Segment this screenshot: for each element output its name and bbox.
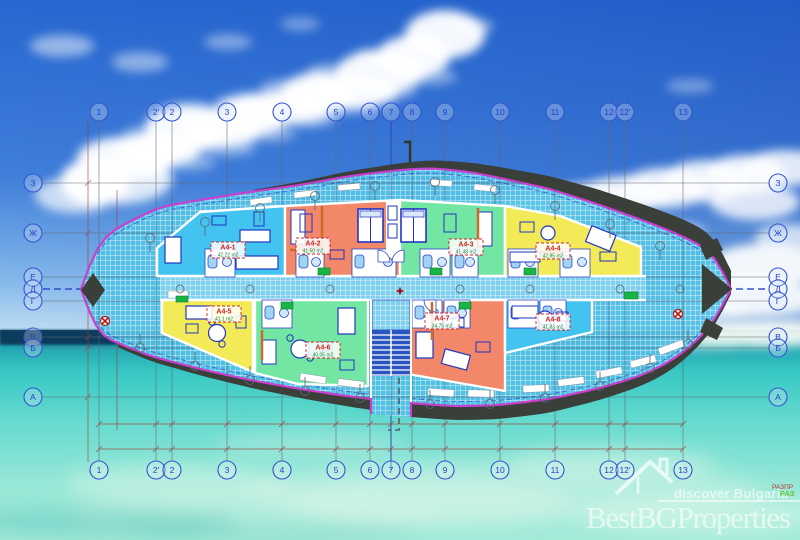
svg-text:A4-3: A4-3 [458,242,473,249]
svg-text:BestBGProperties: BestBGProperties [586,500,791,535]
svg-text:A4-2: A4-2 [305,241,320,248]
svg-text:34.75 m2: 34.75 m2 [432,324,453,330]
svg-text:8: 8 [410,465,415,475]
svg-text:A4-8: A4-8 [545,317,560,324]
svg-text:А: А [775,392,781,402]
svg-text:Г: Г [31,296,36,306]
svg-text:2: 2 [170,107,175,117]
svg-text:5: 5 [334,465,339,475]
svg-text:A4-1: A4-1 [220,245,235,252]
svg-text:41.50 m2: 41.50 m2 [303,249,324,255]
svg-text:4: 4 [280,465,285,475]
svg-text:10: 10 [495,465,505,475]
svg-text:A4-6: A4-6 [315,345,330,352]
svg-text:7: 7 [389,465,394,475]
svg-text:Б: Б [30,343,36,353]
svg-text:41.1 m2: 41.1 m2 [215,317,233,323]
svg-text:2: 2 [170,465,175,475]
svg-text:1: 1 [97,465,102,475]
svg-text:A4-7: A4-7 [434,316,449,323]
svg-text:9: 9 [443,465,448,475]
svg-text:Ж: Ж [774,228,782,238]
svg-text:6: 6 [368,107,373,117]
svg-text:11: 11 [551,107,560,117]
svg-text:А: А [30,392,36,402]
svg-text:12: 12 [604,107,614,117]
svg-text:12': 12' [619,465,630,475]
svg-text:З: З [30,178,35,188]
svg-text:РАЗПР: РАЗПР [772,484,793,491]
svg-text:3: 3 [225,107,230,117]
svg-text:12': 12' [619,107,630,117]
svg-text:4: 4 [280,107,285,117]
svg-text:5: 5 [334,107,339,117]
svg-text:Ж: Ж [29,228,37,238]
svg-text:12: 12 [604,465,614,475]
svg-text:1: 1 [97,107,102,117]
svg-text:41.83 m2: 41.83 m2 [543,325,564,331]
svg-text:13: 13 [678,107,688,117]
svg-text:10: 10 [495,107,505,117]
svg-text:A4-5: A4-5 [216,309,231,316]
svg-text:13: 13 [678,465,688,475]
svg-text:42.22 m2: 42.22 m2 [218,253,239,259]
svg-text:2': 2' [153,465,160,475]
svg-text:З: З [775,178,780,188]
svg-text:6: 6 [368,465,373,475]
svg-text:A4-4: A4-4 [545,246,560,253]
svg-text:Г: Г [776,296,781,306]
svg-text:11: 11 [551,465,560,475]
svg-text:Б: Б [775,343,781,353]
svg-text:9: 9 [443,107,448,117]
svg-text:41.48 m2: 41.48 m2 [456,250,477,256]
svg-text:40.05 m2: 40.05 m2 [313,353,334,359]
svg-text:2': 2' [153,107,160,117]
svg-text:3: 3 [225,465,230,475]
svg-text:7: 7 [389,107,394,117]
svg-text:8: 8 [410,107,415,117]
svg-text:42.85 m2: 42.85 m2 [543,254,564,260]
